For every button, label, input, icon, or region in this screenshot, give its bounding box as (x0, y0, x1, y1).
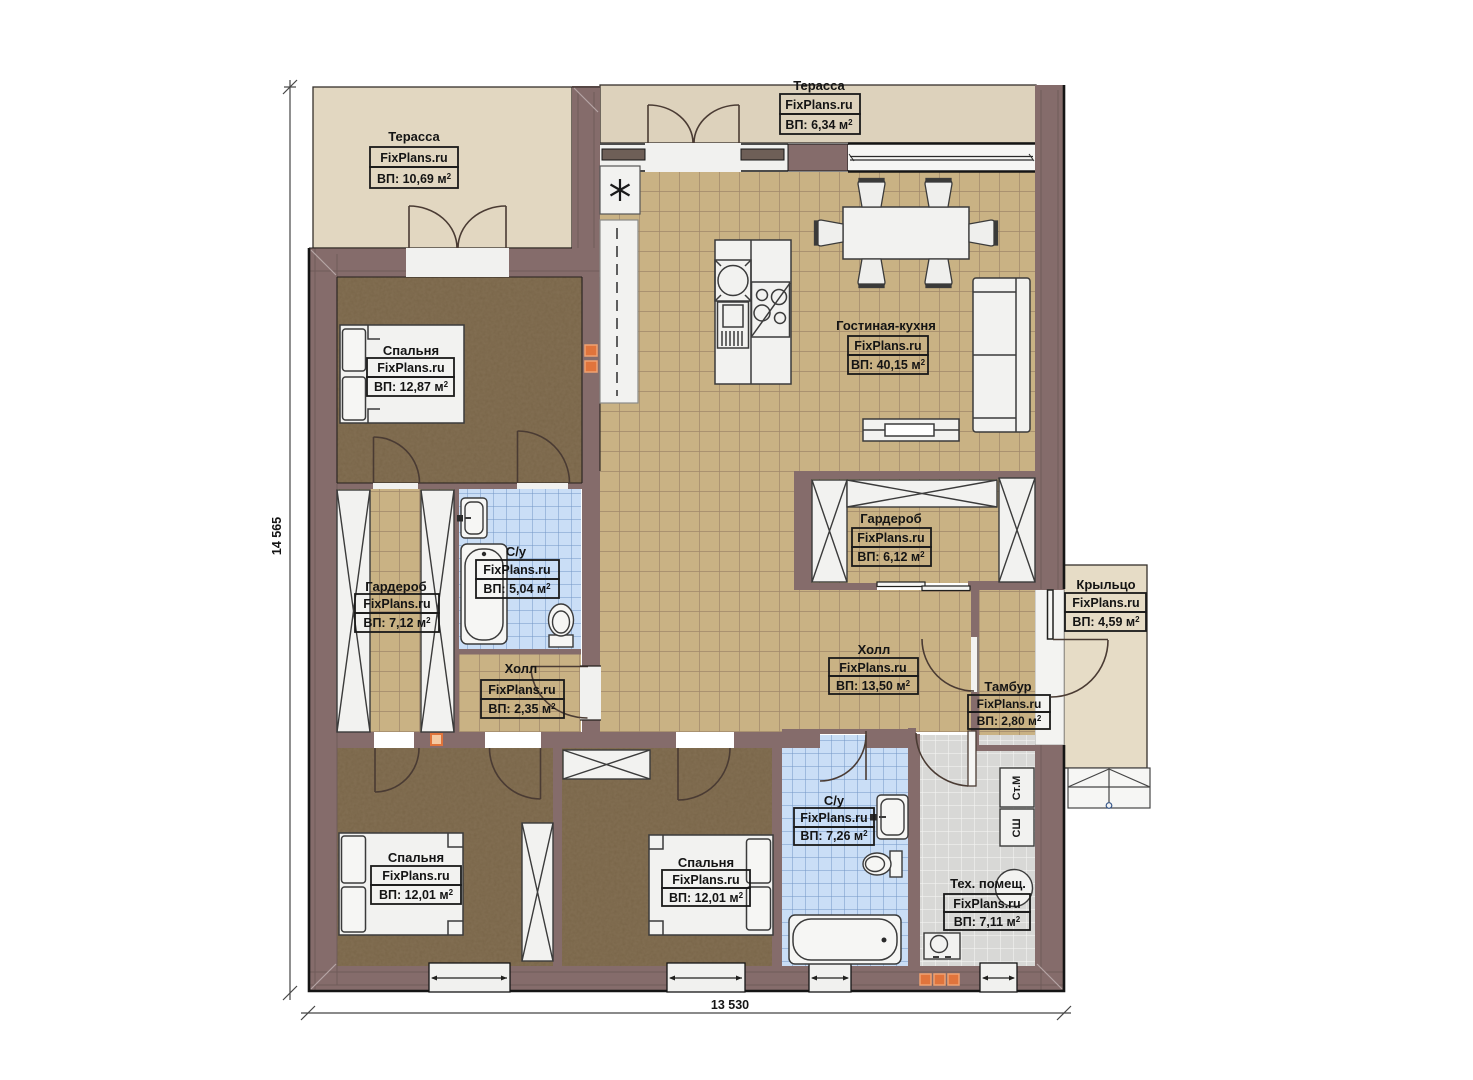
svg-text:ВП: 10,69 м2: ВП: 10,69 м2 (377, 172, 452, 186)
svg-text:ВП: 7,12 м2: ВП: 7,12 м2 (363, 616, 431, 630)
svg-text:FixPlans.ru: FixPlans.ru (363, 597, 430, 611)
svg-text:FixPlans.ru: FixPlans.ru (377, 361, 444, 375)
svg-text:ВП: 13,50 м2: ВП: 13,50 м2 (836, 679, 911, 693)
svg-text:FixPlans.ru: FixPlans.ru (488, 683, 555, 697)
svg-text:ВП: 40,15 м2: ВП: 40,15 м2 (851, 358, 926, 372)
svg-text:С/у: С/у (506, 544, 527, 559)
svg-text:Терасса: Терасса (793, 78, 845, 93)
svg-text:ВП: 7,26 м2: ВП: 7,26 м2 (800, 829, 868, 843)
svg-text:ВП: 12,01 м2: ВП: 12,01 м2 (379, 888, 454, 902)
svg-text:Крыльцо: Крыльцо (1076, 577, 1135, 592)
svg-text:Ст.М: Ст.М (1011, 776, 1023, 801)
svg-text:13 530: 13 530 (711, 998, 749, 1012)
svg-text:FixPlans.ru: FixPlans.ru (483, 563, 550, 577)
svg-text:FixPlans.ru: FixPlans.ru (854, 339, 921, 353)
svg-text:С/у: С/у (824, 793, 845, 808)
svg-text:FixPlans.ru: FixPlans.ru (857, 531, 924, 545)
svg-text:FixPlans.ru: FixPlans.ru (953, 897, 1020, 911)
svg-text:Гардероб: Гардероб (365, 579, 426, 594)
svg-text:Тех. помещ.: Тех. помещ. (950, 876, 1026, 891)
svg-text:Тамбур: Тамбур (984, 679, 1031, 694)
svg-text:FixPlans.ru: FixPlans.ru (382, 869, 449, 883)
svg-text:Гардероб: Гардероб (860, 511, 921, 526)
svg-text:ВП: 12,01 м2: ВП: 12,01 м2 (669, 891, 744, 905)
svg-text:СШ: СШ (1011, 819, 1023, 838)
svg-text:Спальня: Спальня (383, 343, 439, 358)
svg-text:Холл: Холл (505, 661, 538, 676)
svg-text:Гостиная-кухня: Гостиная-кухня (836, 318, 936, 333)
svg-text:Спальня: Спальня (678, 855, 734, 870)
svg-text:ВП: 7,11 м2: ВП: 7,11 м2 (954, 915, 1021, 929)
svg-text:ВП: 5,04 м2: ВП: 5,04 м2 (483, 582, 551, 596)
svg-text:FixPlans.ru: FixPlans.ru (800, 811, 867, 825)
svg-text:ВП: 6,34 м2: ВП: 6,34 м2 (785, 118, 853, 132)
svg-text:ВП: 6,12 м2: ВП: 6,12 м2 (857, 550, 925, 564)
svg-text:ВП: 2,35 м2: ВП: 2,35 м2 (488, 702, 556, 716)
svg-text:Терасса: Терасса (388, 129, 440, 144)
svg-text:FixPlans.ru: FixPlans.ru (785, 98, 852, 112)
svg-text:ВП: 2,80 м2: ВП: 2,80 м2 (977, 714, 1042, 728)
svg-text:FixPlans.ru: FixPlans.ru (672, 873, 739, 887)
svg-text:FixPlans.ru: FixPlans.ru (977, 697, 1042, 711)
svg-text:ВП: 4,59 м2: ВП: 4,59 м2 (1072, 615, 1140, 629)
svg-text:14 565: 14 565 (270, 517, 284, 555)
svg-text:FixPlans.ru: FixPlans.ru (1072, 596, 1139, 610)
svg-text:Спальня: Спальня (388, 850, 444, 865)
svg-text:ВП: 12,87 м2: ВП: 12,87 м2 (374, 380, 449, 394)
svg-text:Холл: Холл (858, 642, 891, 657)
svg-text:FixPlans.ru: FixPlans.ru (380, 151, 447, 165)
svg-text:FixPlans.ru: FixPlans.ru (839, 661, 906, 675)
